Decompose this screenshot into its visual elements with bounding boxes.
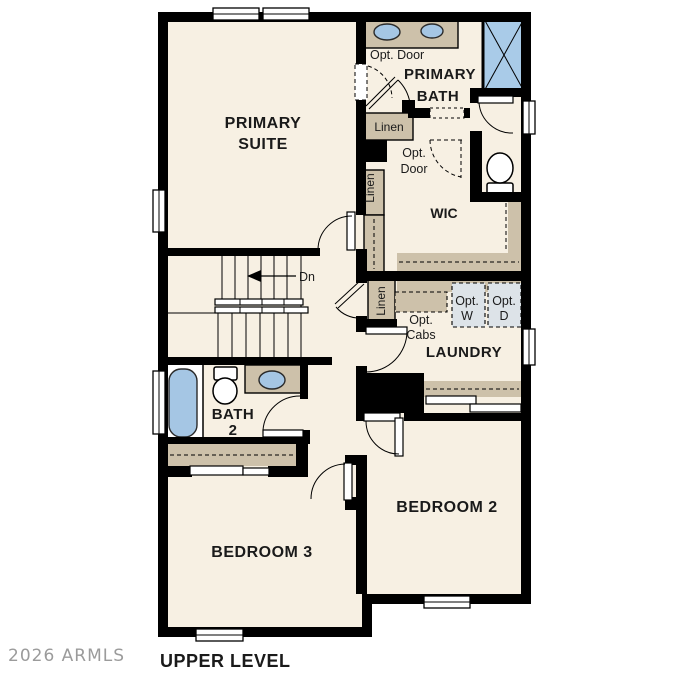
label-opt-door-wic-1: Opt. [402,146,426,160]
window [213,8,259,20]
room-label-bedroom3: BEDROOM 3 [211,544,312,561]
room-label-primary-bath-1: PRIMARY [404,66,476,83]
room-label-primary-bath-2: BATH [417,88,460,105]
bathtub [163,363,203,443]
stair-handrail [215,299,303,305]
room-label-primary-suite-2: SUITE [238,136,288,153]
window [523,101,535,134]
floorplan-svg: PRIMARY SUITE PRIMARY BATH WIC LAUNDRY B… [0,0,687,687]
plan-title: UPPER LEVEL [160,651,291,671]
label-linen-hall: Linen [363,173,377,202]
room-label-bath2-2: 2 [229,422,238,439]
label-linen-bath: Linen [374,120,403,134]
wic-shelf-right [508,202,521,253]
label-opt-dryer-2: D [499,309,508,323]
sink-left [374,24,400,40]
label-opt-washer-1: Opt. [455,294,479,308]
toilet-primary [487,153,513,196]
shower-fixture [483,17,525,93]
toilet-bath2 [213,367,237,404]
label-opt-washer-2: W [461,309,473,323]
room-label-bedroom2: BEDROOM 2 [396,499,497,516]
window [153,371,165,434]
label-stairs-down: Dn [299,270,315,284]
room-label-laundry: LAUNDRY [426,344,502,361]
floorplan-image: PRIMARY SUITE PRIMARY BATH WIC LAUNDRY B… [0,0,687,687]
label-opt-door-bath: Opt. Door [370,48,424,62]
sink-bath2 [259,371,285,389]
window [424,596,470,608]
window [523,329,535,365]
label-opt-cabs-1: Opt. [409,313,433,327]
optional-cabinets [395,292,447,312]
label-opt-cabs-2: Cabs [406,328,435,342]
label-opt-door-wic-2: Door [400,162,427,176]
label-opt-dryer-1: Opt. [492,294,516,308]
room-label-wic: WIC [430,205,457,221]
room-label-bath2-1: BATH [212,406,255,423]
watermark-text: 2026 ARMLS [8,646,125,666]
sink-right [421,24,443,38]
window [196,629,243,641]
window [263,8,309,20]
label-linen-laundry: Linen [374,286,388,315]
room-label-primary-suite-1: PRIMARY [225,115,302,132]
window [153,190,165,232]
